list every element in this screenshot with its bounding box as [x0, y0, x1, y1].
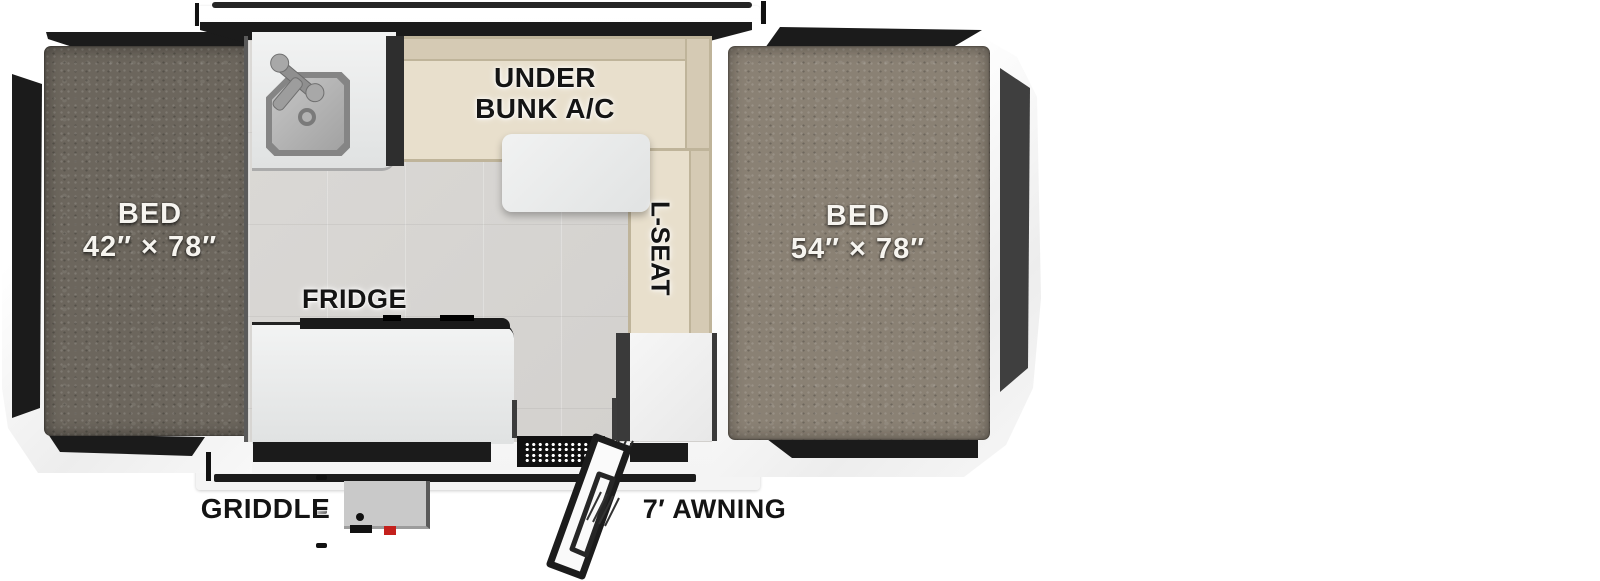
dinette-bench-back — [403, 39, 709, 61]
cooktop-knob-1 — [383, 315, 401, 321]
fridge-counter — [252, 322, 514, 444]
l-seat-bench-back — [689, 151, 709, 335]
roof-right-tick — [761, 1, 766, 24]
entry-cabinet — [630, 333, 712, 441]
left-bed-label-size: 42″ × 78″ — [50, 231, 250, 264]
right-bed-label: BED 54″ × 78″ — [758, 200, 958, 267]
l-seat-label: L-SEAT — [634, 168, 686, 328]
roof-edge-strip — [212, 2, 752, 8]
left-bed-label-line1: BED — [50, 198, 250, 231]
dinette-bench-right-arm — [685, 39, 709, 159]
left-bed-end-panel — [10, 70, 44, 420]
wardrobe-panel — [386, 36, 404, 166]
entry-door — [540, 430, 660, 581]
stabilizer-mark-1 — [316, 475, 327, 480]
cabinet-right-edge — [712, 333, 717, 441]
griddle-knob-icon — [356, 513, 364, 521]
cooktop-band — [300, 318, 510, 329]
door-side-panel — [616, 333, 630, 441]
under-bunk-ac-line1: UNDER — [420, 62, 670, 93]
under-counter-strip — [253, 442, 491, 462]
stabilizer-mark-3 — [316, 543, 327, 548]
right-bed-label-size: 54″ × 78″ — [758, 233, 958, 266]
doorway-jamb-left — [512, 400, 517, 438]
right-bed-label-line1: BED — [758, 200, 958, 233]
cooktop-knob-2 — [440, 315, 474, 321]
dinette-table — [502, 134, 650, 212]
fridge-label: FRIDGE — [282, 284, 427, 314]
awning-left-tick — [206, 452, 211, 481]
griddle-latch — [350, 525, 372, 533]
under-bunk-ac-label: UNDER BUNK A/C — [420, 62, 670, 125]
griddle-unit — [344, 481, 430, 529]
griddle-valve — [384, 526, 396, 535]
under-bunk-ac-line2: BUNK A/C — [420, 93, 670, 124]
griddle-label: GRIDDLE — [193, 493, 338, 524]
rv-floorplan-canvas: BED 42″ × 78″ BED 54″ × 78″ UNDER BUNK A… — [0, 0, 1600, 581]
roof-left-tick — [195, 3, 199, 26]
left-bed-label: BED 42″ × 78″ — [50, 198, 250, 265]
